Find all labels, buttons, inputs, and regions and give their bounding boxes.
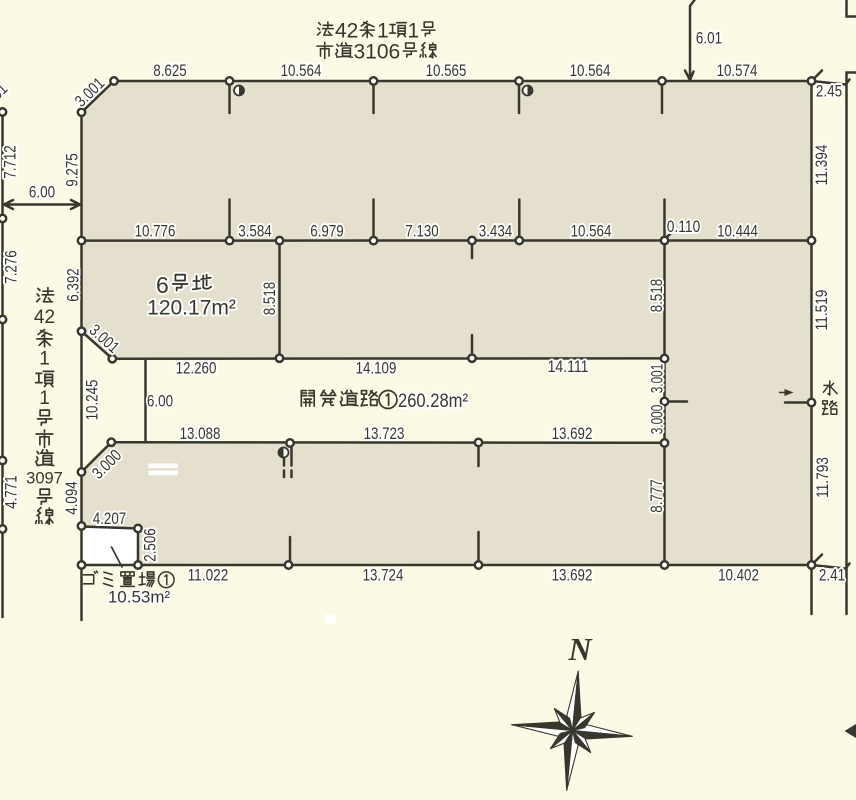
svg-text:13.088: 13.088 [180, 425, 221, 443]
svg-text:8.625: 8.625 [153, 62, 187, 80]
svg-text:11.519: 11.519 [813, 290, 831, 331]
svg-text:120.17m²: 120.17m² [147, 297, 236, 320]
svg-text:14.111: 14.111 [548, 358, 589, 376]
svg-text:3106: 3106 [354, 41, 401, 64]
svg-text:14.109: 14.109 [356, 360, 397, 378]
svg-text:7.712: 7.712 [2, 145, 20, 179]
svg-text:42: 42 [335, 20, 358, 43]
svg-text:10.564: 10.564 [570, 62, 611, 80]
svg-text:10.565: 10.565 [426, 62, 467, 80]
svg-text:2.45: 2.45 [816, 83, 842, 101]
svg-text:3097: 3097 [26, 470, 63, 488]
svg-text:10.245: 10.245 [84, 380, 102, 421]
svg-text:1: 1 [39, 349, 50, 370]
svg-text:8.518: 8.518 [648, 279, 666, 313]
svg-text:9.275: 9.275 [64, 153, 82, 187]
svg-text:13.692: 13.692 [552, 567, 593, 585]
svg-text:1: 1 [377, 20, 389, 43]
svg-text:12.260: 12.260 [176, 360, 217, 378]
svg-text:8.518: 8.518 [261, 282, 279, 316]
svg-text:10.776: 10.776 [135, 223, 176, 241]
svg-text:2.506: 2.506 [142, 528, 160, 562]
svg-text:11.394: 11.394 [813, 145, 831, 186]
svg-text:13.692: 13.692 [552, 425, 593, 443]
svg-text:6.392: 6.392 [65, 268, 83, 302]
svg-text:2.41: 2.41 [819, 567, 845, 585]
svg-text:4.771: 4.771 [3, 475, 21, 509]
svg-text:1: 1 [408, 20, 420, 43]
svg-text:3.001: 3.001 [649, 364, 667, 394]
svg-text:10.564: 10.564 [281, 62, 322, 80]
svg-text:11.022: 11.022 [188, 567, 229, 585]
svg-text:42: 42 [34, 307, 55, 328]
svg-text:4.094: 4.094 [63, 481, 81, 515]
svg-text:0.110: 0.110 [667, 218, 701, 236]
svg-text:3.000: 3.000 [649, 405, 667, 435]
svg-text:10.574: 10.574 [717, 62, 758, 80]
svg-text:10.444: 10.444 [717, 223, 758, 241]
svg-text:6.00: 6.00 [147, 393, 173, 411]
svg-text:13.724: 13.724 [363, 567, 404, 585]
svg-text:3.584: 3.584 [238, 223, 272, 241]
svg-text:3.434: 3.434 [479, 223, 513, 241]
svg-text:4.207: 4.207 [93, 510, 127, 528]
svg-text:8.777: 8.777 [648, 479, 666, 513]
svg-text:10.402: 10.402 [718, 567, 759, 585]
svg-text:6.00: 6.00 [29, 184, 55, 202]
svg-text:1: 1 [39, 388, 50, 409]
svg-text:10.564: 10.564 [571, 223, 612, 241]
svg-text:260.28m²: 260.28m² [398, 390, 468, 412]
svg-text:13.723: 13.723 [364, 425, 405, 443]
svg-text:7.130: 7.130 [405, 223, 439, 241]
svg-text:11.793: 11.793 [814, 457, 832, 498]
svg-text:7.276: 7.276 [3, 250, 21, 284]
svg-text:6.979: 6.979 [310, 223, 344, 241]
svg-text:6: 6 [156, 272, 169, 298]
svg-text:N: N [567, 631, 593, 667]
svg-text:10.53m²: 10.53m² [108, 588, 171, 607]
svg-text:6.01: 6.01 [696, 30, 722, 48]
